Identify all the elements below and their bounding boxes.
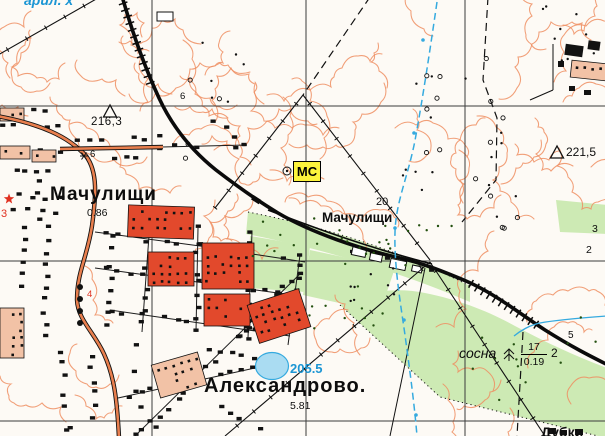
- label-value-086: 0.86: [87, 208, 107, 219]
- label-station-machulishchi: Мачулищи: [322, 211, 392, 225]
- label-mill-6: 6: [90, 150, 95, 160]
- forest-diameter: 0.19: [521, 354, 547, 368]
- forest-stand-fraction: 17 0.19: [521, 341, 547, 368]
- label-track-5: 5: [568, 331, 574, 341]
- label-value-581: 5.81: [290, 401, 310, 412]
- forest-height: 17: [528, 341, 540, 353]
- main-roads: [0, 116, 163, 436]
- label-spot-height-nw: 216,3: [91, 117, 122, 129]
- ms-marker[interactable]: МС: [293, 161, 321, 182]
- label-tanks-4: 4: [87, 290, 92, 300]
- label-curve-6: 6: [180, 92, 185, 102]
- label-area-name-top: арил. х: [24, 0, 73, 7]
- label-town-machulishchi: Мачулищи: [50, 185, 157, 204]
- label-forest-species: сосна: [459, 346, 496, 360]
- label-edge-2: 2: [586, 245, 592, 256]
- label-town-aleksandrovo: Александрово.: [204, 376, 366, 396]
- label-spot-height-ne: 221,5: [566, 146, 596, 158]
- label-edge-3: 3: [592, 224, 598, 235]
- label-forest-spacing: 2: [551, 347, 558, 359]
- label-bottom-partial: Дубки: [541, 425, 583, 436]
- label-lake-elevation: 205.5: [290, 362, 323, 375]
- topographic-map[interactable]: арил. х 216,3 Мачулищи 0.86 МС Мачулищи …: [0, 0, 605, 436]
- ms-marker-label: МС: [297, 164, 317, 179]
- label-route-3: 3: [1, 209, 7, 220]
- star-icon: [4, 194, 14, 204]
- label-value-20: 20: [376, 197, 388, 208]
